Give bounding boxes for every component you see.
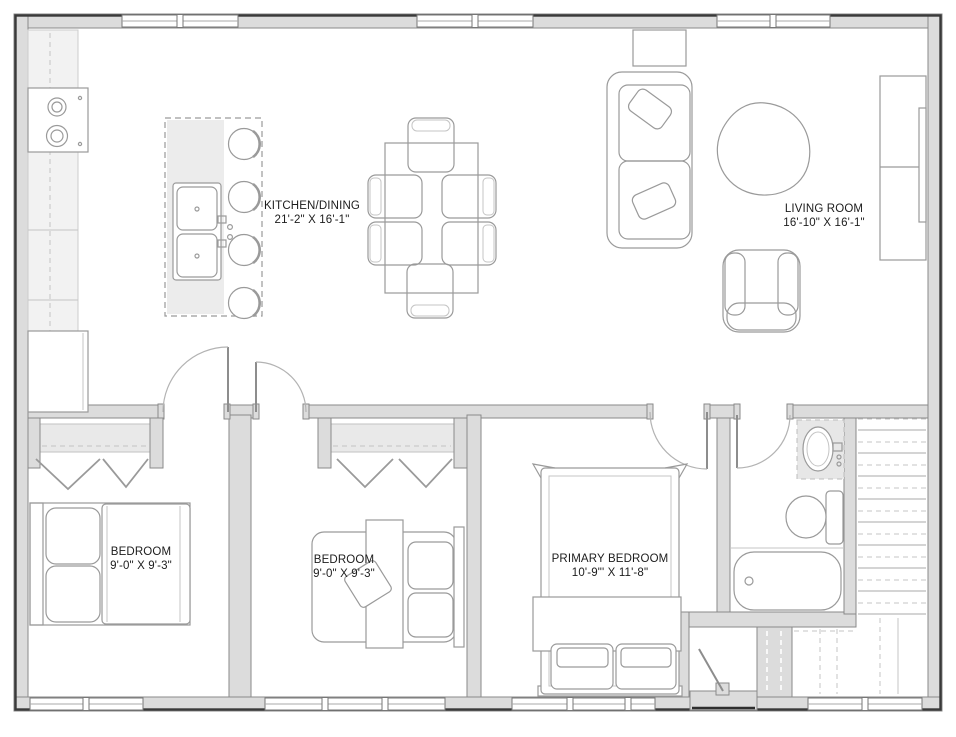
room-label-bedroom-1: BEDROOM 9'-0" X 9'-3" <box>110 545 172 573</box>
window <box>808 698 922 711</box>
room-label-primary-bedroom: PRIMARY BEDROOM 10'-9"' X 11'-8" <box>552 552 669 580</box>
floor-plan-drawing <box>0 0 956 737</box>
room-label-kitchen-dining: KITCHEN/DINING 21'-2" X 16'-1" <box>264 199 360 227</box>
sofa-icon <box>607 72 692 248</box>
armchair-icon <box>723 250 800 332</box>
bar-stool-icon <box>229 182 260 213</box>
room-dims: 16'-10" X 16'-1" <box>783 216 864 230</box>
bar-stool-icon <box>229 235 260 266</box>
room-name: KITCHEN/DINING <box>264 199 360 213</box>
room-name: BEDROOM <box>313 553 375 567</box>
room-name: PRIMARY BEDROOM <box>552 552 669 566</box>
bed-icon <box>312 520 464 648</box>
dining-chair-icon <box>442 222 496 265</box>
room-name: BEDROOM <box>110 545 172 559</box>
bed-icon <box>533 464 687 696</box>
window <box>417 15 533 28</box>
room-dims: 21'-2" X 16'-1" <box>264 213 360 227</box>
front-door <box>690 649 757 710</box>
closet-rod-icon <box>36 459 148 489</box>
closet-rod-icon <box>337 459 452 487</box>
window <box>265 698 445 711</box>
dining-chair-icon <box>407 264 453 318</box>
room-dims: 9'-0" X 9'-3" <box>110 559 172 573</box>
bathroom-vanity-icon <box>797 420 844 479</box>
bar-stool-icon <box>229 288 260 319</box>
dining-set <box>368 118 496 318</box>
bar-stool-icon <box>229 129 260 160</box>
room-label-living-room: LIVING ROOM 16'-10" X 16'-1" <box>783 202 864 230</box>
floor-plan: KITCHEN/DINING 21'-2" X 16'-1" LIVING RO… <box>0 0 956 737</box>
bathtub-icon <box>730 548 844 610</box>
door-primary-bedroom <box>650 412 707 469</box>
stairs-icon <box>858 419 926 614</box>
window <box>122 15 238 28</box>
window <box>30 698 143 711</box>
door-bedroom-1 <box>163 347 228 412</box>
refrigerator-icon <box>28 331 88 412</box>
end-table-icon <box>633 30 686 66</box>
toilet-icon <box>786 491 843 544</box>
room-dims: 9'-0" X 9'-3" <box>313 567 375 581</box>
tv-console-icon <box>880 76 926 260</box>
rug-icon <box>717 103 809 195</box>
door-bedroom-2 <box>256 362 306 412</box>
dining-chair-icon <box>368 175 422 218</box>
closet <box>318 418 467 487</box>
room-dims: 10'-9"' X 11'-8" <box>552 566 669 580</box>
dining-chair-icon <box>408 118 454 172</box>
door-bathroom <box>737 415 790 468</box>
dining-chair-icon <box>368 222 422 265</box>
room-label-bedroom-2: BEDROOM 9'-0" X 9'-3" <box>313 553 375 581</box>
tv-icon <box>919 108 926 222</box>
window <box>717 15 830 28</box>
range-icon <box>28 88 88 152</box>
window <box>512 698 655 711</box>
dining-chair-icon <box>442 175 496 218</box>
closet <box>28 418 163 489</box>
room-name: LIVING ROOM <box>783 202 864 216</box>
